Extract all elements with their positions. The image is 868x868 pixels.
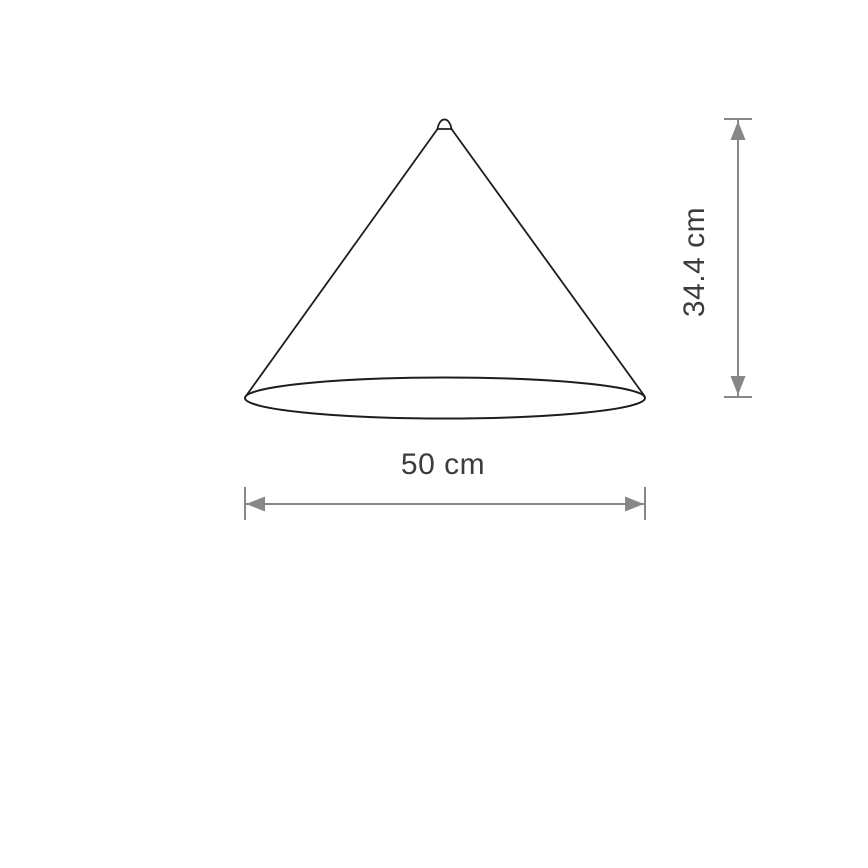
diagram-canvas: 50 cm 34.4 cm (0, 0, 868, 868)
height-dimension-arrow-down (731, 376, 746, 395)
cone-base-ellipse (245, 378, 645, 419)
cone-silhouette (245, 119, 645, 418)
height-dimension-arrow-up (731, 121, 746, 140)
height-dimension-label: 34.4 cm (678, 187, 712, 337)
cone-right-edge (452, 129, 645, 396)
cone-apex-cap (438, 119, 452, 129)
width-dimension-arrow-right (625, 497, 644, 512)
width-dimension-label: 50 cm (343, 448, 543, 482)
width-dimension (245, 487, 645, 520)
height-dimension (724, 119, 752, 397)
width-dimension-arrow-left (246, 497, 265, 512)
cone-left-edge (246, 129, 438, 396)
cone-dimension-drawing (0, 0, 868, 868)
